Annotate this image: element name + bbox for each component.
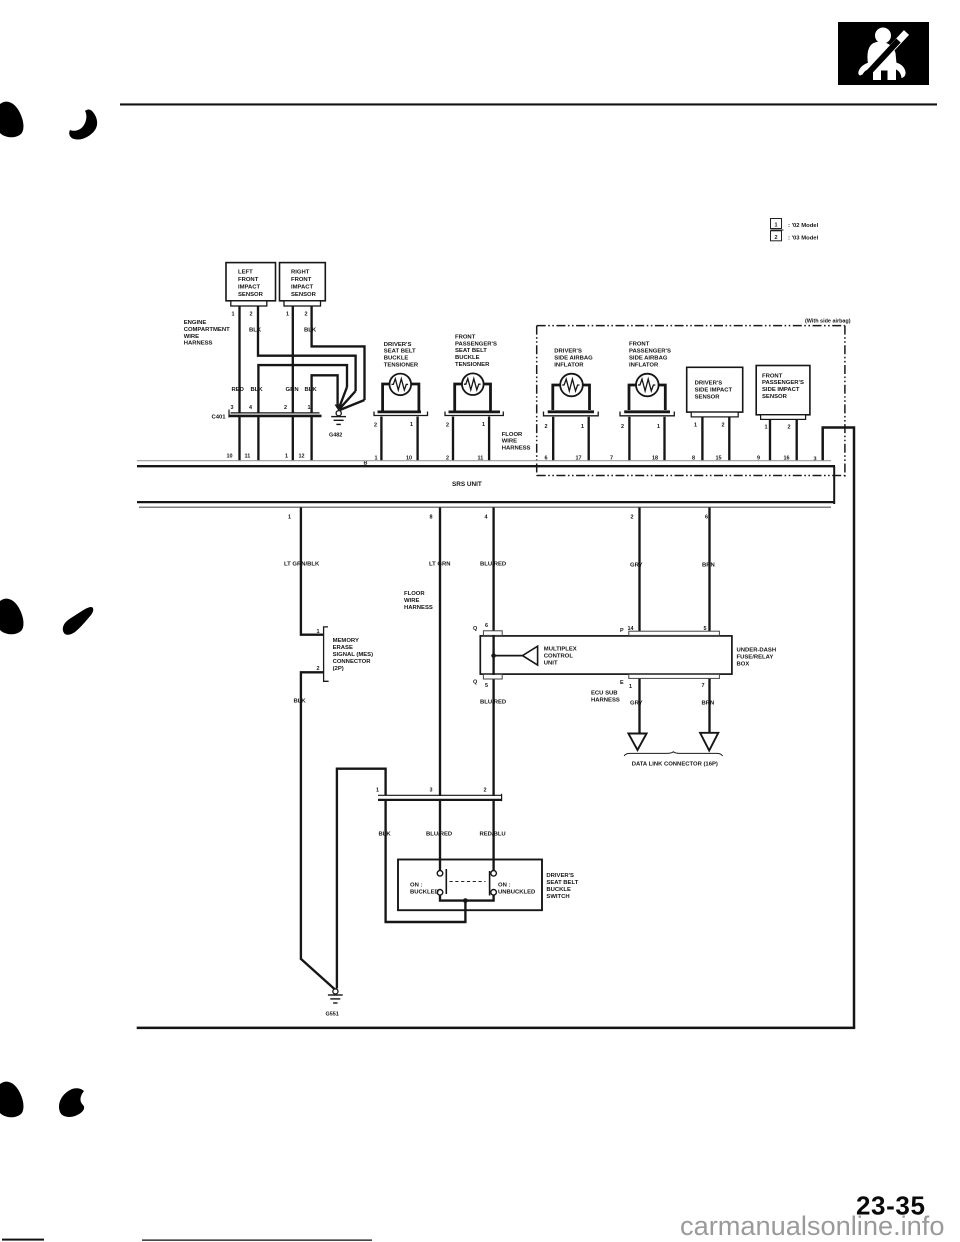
svg-text:2: 2 bbox=[775, 235, 778, 241]
svg-text:2: 2 bbox=[284, 405, 287, 411]
svg-text:BLK: BLK bbox=[305, 387, 318, 393]
svg-text:7: 7 bbox=[702, 683, 705, 689]
svg-text:Q: Q bbox=[473, 680, 477, 686]
svg-text:12: 12 bbox=[299, 454, 305, 460]
svg-text:DRIVER'SSIDE AIRBAGINFLATOR: DRIVER'SSIDE AIRBAGINFLATOR bbox=[554, 349, 593, 369]
svg-text:3: 3 bbox=[430, 788, 433, 794]
svg-text:1: 1 bbox=[308, 405, 311, 411]
svg-text:3: 3 bbox=[814, 457, 817, 463]
svg-text:G482: G482 bbox=[329, 433, 342, 439]
svg-text:MEMORYERASESIGNAL (MES)CONNECT: MEMORYERASESIGNAL (MES)CONNECTOR(2P) bbox=[333, 638, 374, 672]
svg-text:2: 2 bbox=[621, 424, 624, 430]
svg-text:BRN: BRN bbox=[702, 701, 715, 707]
svg-text:GRY: GRY bbox=[630, 701, 643, 707]
svg-text:1: 1 bbox=[765, 425, 768, 431]
svg-text:1: 1 bbox=[286, 312, 289, 318]
svg-text:1: 1 bbox=[482, 422, 485, 428]
svg-text:4: 4 bbox=[485, 515, 488, 521]
svg-text:2: 2 bbox=[317, 666, 320, 672]
svg-text:BRN: BRN bbox=[702, 563, 715, 569]
svg-text:6: 6 bbox=[705, 515, 708, 521]
svg-text:GRY: GRY bbox=[630, 563, 643, 569]
svg-text:BLU/RED: BLU/RED bbox=[480, 562, 506, 568]
svg-text:GRN: GRN bbox=[286, 387, 299, 393]
svg-text:DRIVER'SSEAT BELTBUCKLESWITCH: DRIVER'SSEAT BELTBUCKLESWITCH bbox=[546, 873, 578, 900]
svg-text:BLK: BLK bbox=[304, 327, 317, 333]
svg-text:RED: RED bbox=[232, 387, 244, 393]
svg-text:ENGINECOMPARTMENTWIREHARNESS: ENGINECOMPARTMENTWIREHARNESS bbox=[184, 320, 230, 347]
svg-text:BLK: BLK bbox=[294, 699, 307, 705]
svg-text:10: 10 bbox=[227, 454, 233, 460]
svg-text:SRS UNIT: SRS UNIT bbox=[452, 481, 482, 488]
svg-text:1: 1 bbox=[317, 629, 320, 635]
svg-text:1: 1 bbox=[629, 684, 632, 690]
svg-text:1: 1 bbox=[694, 423, 697, 429]
svg-text:E: E bbox=[620, 680, 624, 686]
svg-text:2: 2 bbox=[484, 788, 487, 794]
svg-text:1: 1 bbox=[232, 312, 235, 318]
svg-text:1: 1 bbox=[288, 515, 291, 521]
svg-text:2: 2 bbox=[305, 312, 308, 318]
svg-text:LT GRN: LT GRN bbox=[429, 562, 451, 568]
svg-text:2: 2 bbox=[722, 423, 725, 429]
svg-text:11: 11 bbox=[245, 454, 251, 460]
svg-text:FRONTPASSENGER'SSEAT BELTBUCKL: FRONTPASSENGER'SSEAT BELTBUCKLETENSIONER bbox=[455, 334, 497, 368]
svg-text:2: 2 bbox=[374, 423, 377, 429]
svg-text:2: 2 bbox=[446, 423, 449, 429]
svg-text:FLOORWIREHARNESS: FLOORWIREHARNESS bbox=[404, 591, 433, 611]
svg-text:C401: C401 bbox=[212, 415, 227, 421]
svg-text:BLK: BLK bbox=[249, 327, 262, 333]
svg-text:5: 5 bbox=[485, 683, 488, 689]
svg-text:ECU SUBHARNESS: ECU SUBHARNESS bbox=[591, 691, 620, 704]
svg-text:G551: G551 bbox=[326, 1012, 339, 1018]
svg-text:1: 1 bbox=[376, 788, 379, 794]
svg-text:2: 2 bbox=[250, 312, 253, 318]
svg-text:DRIVER'SSEAT BELTBUCKLETENSION: DRIVER'SSEAT BELTBUCKLETENSIONER bbox=[384, 342, 419, 369]
svg-text:2: 2 bbox=[788, 425, 791, 431]
svg-text:carmanualsonline.info: carmanualsonline.info bbox=[680, 1210, 944, 1241]
svg-text:P: P bbox=[620, 628, 624, 634]
svg-text:4: 4 bbox=[249, 405, 252, 411]
svg-text:1: 1 bbox=[775, 223, 778, 229]
svg-text:BLK: BLK bbox=[379, 832, 392, 838]
svg-text:: '03 Model: : '03 Model bbox=[788, 235, 819, 241]
svg-text:RED/BLU: RED/BLU bbox=[480, 832, 506, 838]
svg-text:3: 3 bbox=[231, 405, 234, 411]
svg-text:FRONTPASSENGER'SSIDE AIRBAGINF: FRONTPASSENGER'SSIDE AIRBAGINFLATOR bbox=[629, 342, 671, 369]
svg-text:6: 6 bbox=[485, 623, 488, 629]
svg-text:1: 1 bbox=[657, 424, 660, 430]
svg-text:DATA LINK CONNECTOR (16P): DATA LINK CONNECTOR (16P) bbox=[632, 762, 718, 768]
svg-text:Q: Q bbox=[473, 626, 477, 632]
svg-text:UNDER-DASHFUSE/RELAYBOX: UNDER-DASHFUSE/RELAYBOX bbox=[737, 648, 777, 668]
svg-text:LT GRN/BLK: LT GRN/BLK bbox=[284, 562, 320, 568]
svg-text:(With side airbag): (With side airbag) bbox=[805, 318, 851, 324]
svg-text:5: 5 bbox=[704, 626, 707, 632]
svg-text:2: 2 bbox=[631, 515, 634, 521]
svg-text:1: 1 bbox=[285, 454, 288, 460]
svg-text:1: 1 bbox=[410, 422, 413, 428]
svg-text:BLU/RED: BLU/RED bbox=[480, 700, 506, 706]
svg-text:BLK: BLK bbox=[251, 387, 264, 393]
svg-text:: '02 Model: : '02 Model bbox=[788, 223, 819, 229]
svg-text:8: 8 bbox=[430, 515, 433, 521]
svg-text:2: 2 bbox=[545, 424, 548, 430]
svg-text:14: 14 bbox=[628, 626, 634, 632]
svg-text:FLOORWIREHARNESS: FLOORWIREHARNESS bbox=[502, 432, 531, 452]
svg-text:BLU/RED: BLU/RED bbox=[426, 832, 452, 838]
svg-text:1: 1 bbox=[581, 424, 584, 430]
